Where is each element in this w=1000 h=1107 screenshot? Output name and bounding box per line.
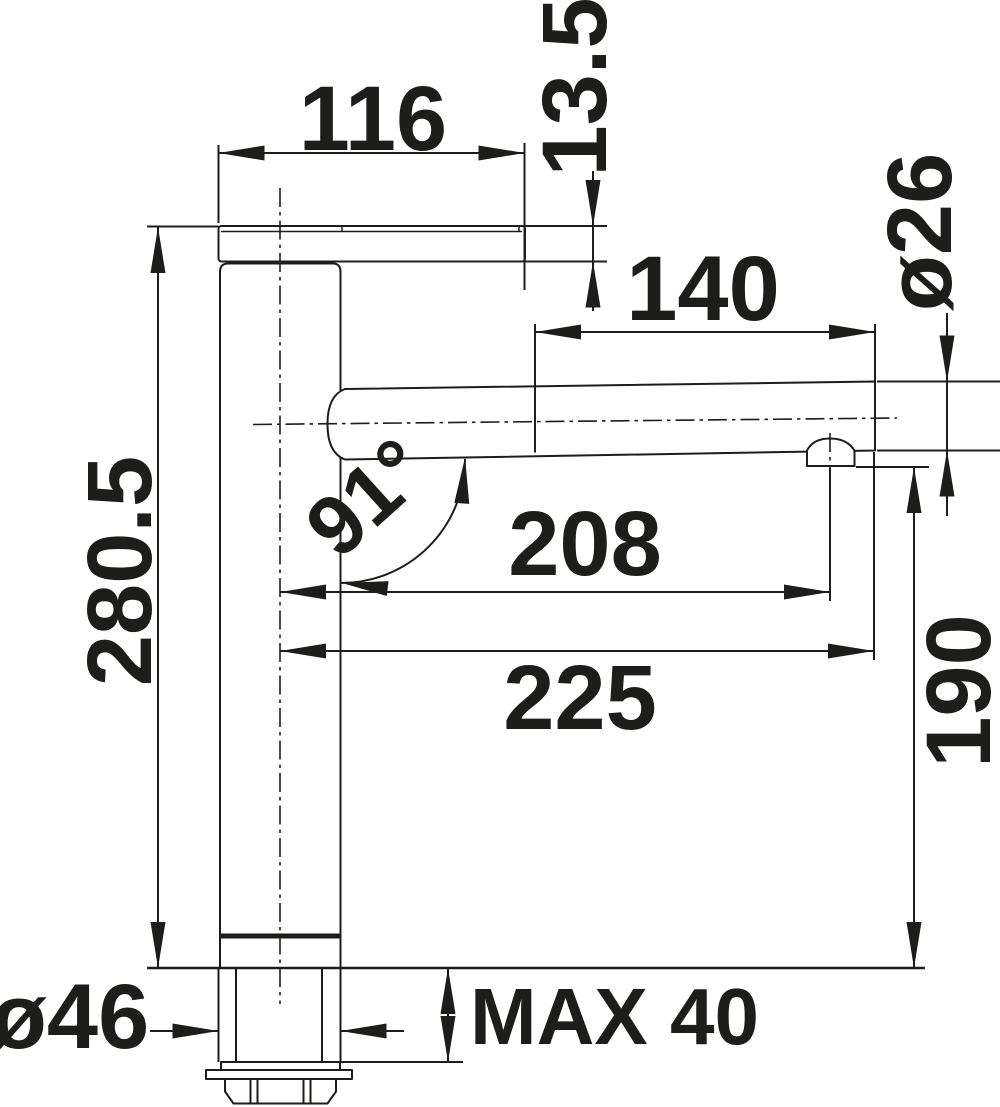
arrowhead: [454, 457, 472, 504]
washer-flange: [206, 1070, 352, 1079]
arrowhead: [586, 180, 601, 226]
dimension-13_5: 13.5: [524, 0, 626, 311]
dimension-280_5: 280.5: [69, 227, 219, 969]
arrowhead: [151, 922, 166, 968]
arrowhead: [441, 968, 456, 1014]
washer-upper: [221, 1062, 340, 1070]
arrowhead: [479, 146, 525, 161]
arrowhead: [829, 325, 875, 340]
arrowhead: [441, 1016, 456, 1062]
arrowhead: [151, 227, 166, 273]
dim-label-13_5: 13.5: [524, 0, 626, 177]
arrowhead: [586, 262, 601, 308]
faucet-dimension-diagram: 116 13.5 140 ø26 280.5: [0, 0, 1000, 1107]
dimension-max-40: MAX 40: [340, 968, 759, 1062]
faucet-spout: [328, 382, 876, 460]
arrowhead: [828, 644, 874, 659]
technical-drawing: 116 13.5 140 ø26 280.5: [0, 0, 1000, 1107]
arrowhead: [173, 1024, 219, 1039]
dim-label-208: 208: [508, 493, 662, 595]
dim-label-280_5: 280.5: [69, 456, 171, 686]
dim-label-140: 140: [626, 238, 780, 340]
dimension-d46: ø46: [0, 966, 404, 1068]
mounting-nut: [225, 1079, 336, 1104]
arrowhead: [940, 336, 955, 382]
arrowhead: [907, 467, 922, 513]
arrowhead: [219, 146, 265, 161]
dim-label-d26: ø26: [869, 153, 971, 312]
dim-label-225: 225: [503, 647, 657, 749]
dim-label-d46: ø46: [0, 966, 149, 1068]
dimension-d26: ø26: [869, 153, 1000, 516]
dimension-190: 190: [856, 467, 1000, 968]
arrowhead: [907, 922, 922, 968]
dim-label-max-40: MAX 40: [470, 972, 759, 1061]
dim-label-190: 190: [908, 614, 1000, 768]
arrowhead: [535, 325, 581, 340]
arrowhead: [940, 451, 955, 497]
arrowhead: [341, 1024, 387, 1039]
dim-label-116: 116: [299, 68, 447, 170]
arrowhead: [784, 585, 830, 600]
